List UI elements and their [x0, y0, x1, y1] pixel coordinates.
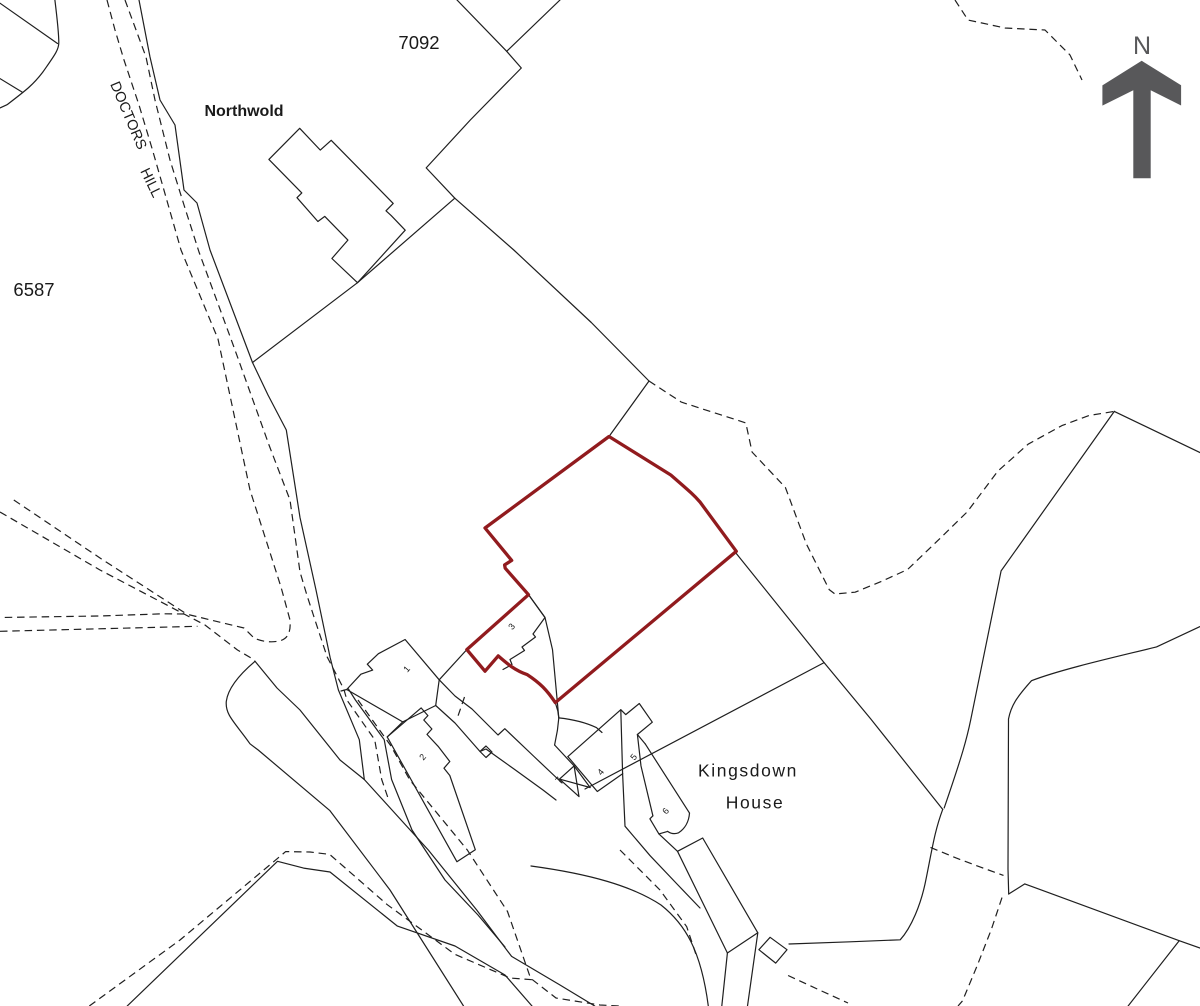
svg-text:7092: 7092 — [398, 32, 439, 53]
svg-text:DOCTORS: DOCTORS — [106, 79, 149, 152]
svg-text:1: 1 — [401, 664, 412, 674]
svg-text:6587: 6587 — [13, 279, 54, 300]
svg-text:House: House — [726, 793, 785, 813]
svg-text:Kingsdown: Kingsdown — [698, 761, 798, 781]
svg-text:Northwold: Northwold — [204, 103, 283, 120]
svg-text:HILL: HILL — [136, 166, 164, 201]
svg-text:N: N — [1133, 32, 1151, 60]
svg-text:6: 6 — [660, 806, 671, 816]
svg-text:4: 4 — [595, 767, 606, 777]
svg-text:2: 2 — [417, 752, 428, 762]
svg-text:3: 3 — [506, 621, 517, 631]
